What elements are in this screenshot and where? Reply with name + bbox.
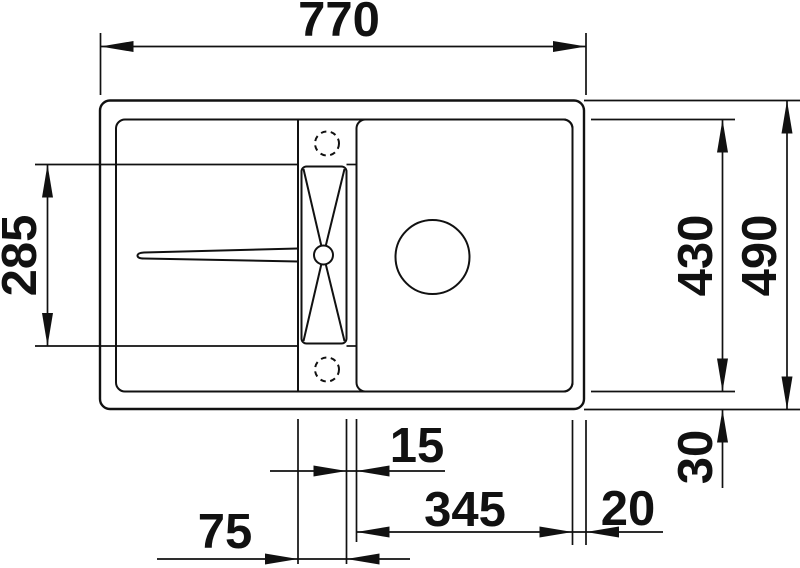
tap-ledge-cross-line-1: [304, 169, 324, 255]
arrowhead-left: [101, 41, 134, 52]
tap-ledge-cross-line-3: [304, 255, 324, 341]
dimension-left-section-depth: 285: [0, 165, 53, 347]
bowl-outline: [357, 120, 573, 392]
arrowhead-right: [314, 466, 347, 477]
sink-outer-edge: [100, 101, 584, 410]
arrowhead-up: [42, 165, 53, 198]
sink-inner-rim: [116, 120, 573, 392]
dimension-label-430: 430: [669, 215, 723, 297]
arrowhead-left: [357, 466, 390, 477]
arrowhead-right: [265, 554, 298, 565]
dimension-label-285: 285: [0, 215, 47, 297]
arrowhead-down: [717, 359, 728, 392]
dimension-label-770: 770: [298, 0, 380, 47]
dimension-label-490: 490: [733, 215, 787, 297]
dimension-overall-width: 770: [101, 0, 587, 95]
arrowhead-right: [540, 527, 573, 538]
tap-hole-top: [315, 132, 339, 156]
tap-ledge-cross-line-4: [324, 255, 345, 341]
drainer-groove: [138, 249, 299, 262]
drain-hole: [396, 220, 470, 294]
dimension-channel-width: 75: [157, 505, 410, 565]
arrowhead-up: [782, 101, 793, 134]
dimension-label-345: 345: [424, 483, 506, 537]
arrowhead-left: [357, 527, 390, 538]
arrowhead-down: [42, 313, 53, 346]
arrowhead-left: [347, 554, 380, 565]
tap-ledge-cross-line-2: [324, 169, 345, 255]
dimension-bottom-rim: 30: [669, 410, 728, 489]
sink-plan-view: [35, 101, 584, 410]
technical-drawing-page: 770 285 430 490 30: [0, 0, 800, 568]
arrowhead-down: [782, 377, 793, 410]
dimension-label-30: 30: [669, 430, 723, 485]
dimension-label-20: 20: [601, 482, 656, 536]
dimension-label-75: 75: [198, 505, 253, 559]
arrowhead-up: [717, 120, 728, 153]
sink-technical-drawing: 770 285 430 490 30: [0, 0, 800, 568]
dimension-channel-to-bowl-gap: 15: [270, 419, 445, 477]
tap-hole-bottom: [315, 358, 339, 382]
dimension-bowl-width-and-right-rim: 345 20: [357, 482, 664, 538]
tap-ledge-center-hole: [314, 246, 333, 265]
dimension-label-15: 15: [390, 419, 445, 473]
arrowhead-right: [553, 41, 586, 52]
dimension-inner-depth: 430: [591, 120, 735, 392]
